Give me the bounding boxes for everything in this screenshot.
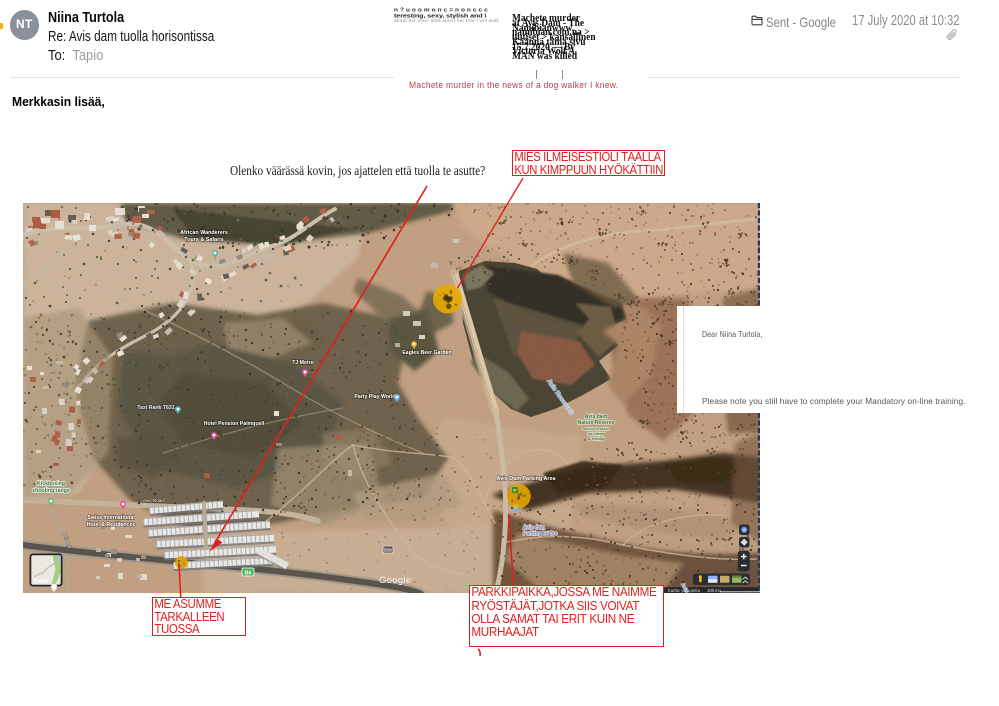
svg-text:Taxi Rank T631: Taxi Rank T631: [137, 405, 175, 411]
svg-text:Avis Road: Avis Road: [143, 498, 164, 503]
svg-text:& fishing: & fishing: [588, 437, 605, 441]
svg-text:Karta: Karta: [34, 579, 49, 585]
svg-text:100 m: 100 m: [707, 588, 719, 593]
svg-text:Party Play World: Party Play World: [354, 394, 395, 400]
svg-text:Eagles Beer Garden: Eagles Beer Garden: [402, 350, 451, 356]
svg-text:shooting range: shooting range: [32, 488, 70, 494]
svg-text:B6b: B6b: [384, 548, 393, 553]
svg-text:TJ Metro: TJ Metro: [292, 360, 314, 366]
svg-text:Parking lot fee: Parking lot fee: [523, 531, 558, 537]
svg-text:B6: B6: [244, 571, 251, 577]
svg-text:Google: Google: [379, 575, 411, 586]
svg-text:Hotel & Residences: Hotel & Residences: [87, 522, 136, 528]
svg-text:Hotel Pension Palmquell: Hotel Pension Palmquell: [204, 421, 265, 427]
svg-text:Avis Dam Parking Area: Avis Dam Parking Area: [497, 476, 557, 482]
svg-text:Nature Reserve: Nature Reserve: [578, 420, 615, 426]
svg-text:Swiss International: Swiss International: [87, 515, 135, 521]
svg-text:Tours & Safaris: Tours & Safaris: [184, 237, 223, 243]
svg-text:African Wanderers: African Wanderers: [180, 230, 228, 236]
svg-text:Kickboxing: Kickboxing: [37, 481, 65, 487]
svg-text:for hiking: for hiking: [587, 432, 605, 436]
svg-text:Scenic reserve: Scenic reserve: [583, 427, 610, 431]
